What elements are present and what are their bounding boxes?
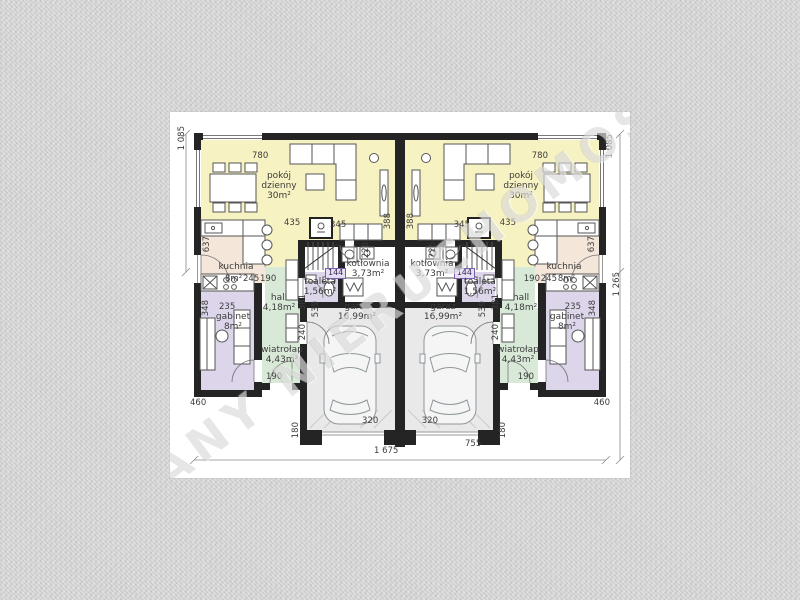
room-label-toilet: toaleta 1,56m²	[300, 278, 340, 298]
room-name: pokój dzienny	[256, 172, 302, 192]
room-area: 8m²	[212, 323, 254, 333]
room-area-kitchen: 8m²	[225, 275, 242, 284]
dim-240: 240	[492, 324, 501, 340]
room-area: 4,18m²	[262, 304, 296, 314]
dim-435: 435	[500, 219, 516, 228]
room-area: 30m²	[498, 192, 544, 202]
room-label-office: gabinet 8m²	[546, 313, 588, 333]
floor-plan: 780 pokój dzienny 30m² 435 345 388 kuchn…	[170, 112, 630, 478]
room-label-living: pokój dzienny 30m²	[498, 172, 544, 202]
room-area: 1,56m²	[460, 288, 500, 298]
room-area: 16,99m²	[414, 313, 472, 323]
dim-320: 320	[362, 417, 378, 426]
room-label-hall: hall 4,18m²	[262, 294, 296, 314]
dim-539: 539	[479, 301, 488, 317]
room-area: 4,43m²	[494, 356, 542, 366]
room-area: 30m²	[256, 192, 302, 202]
dim-345: 345	[454, 221, 470, 230]
room-label-boiler: kotłownia 3,73m²	[404, 260, 460, 280]
dim-180: 180	[292, 422, 301, 438]
dim-637: 637	[203, 236, 212, 252]
dim-235: 235	[565, 303, 581, 312]
dim-348: 348	[589, 300, 598, 316]
dim-780: 780	[252, 152, 268, 161]
dim-180: 180	[499, 422, 508, 438]
room-name: kuchnia	[216, 263, 256, 273]
unit-right: 780 pokój dzienny 30m² 435 345 388 kuchn…	[400, 112, 630, 478]
room-area: 8m²	[546, 323, 588, 333]
dim-348: 348	[202, 300, 211, 316]
dim-320: 320	[422, 417, 438, 426]
room-label-vestibule: wiatrołap 4,43m²	[258, 346, 306, 366]
dim-190-kitchen: 190	[524, 275, 540, 284]
room-area: 4,18m²	[504, 304, 538, 314]
unit-left: 780 pokój dzienny 30m² 435 345 388 kuchn…	[170, 112, 400, 478]
dim-460: 460	[190, 399, 206, 408]
dim-539: 539	[312, 301, 321, 317]
dim-190-kitchen: 190	[260, 275, 276, 284]
room-area: 3,73m²	[404, 270, 460, 280]
room-label-garage: garaż 16,99m²	[328, 303, 386, 323]
dim-460: 460	[594, 399, 610, 408]
unit-labels: 780 pokój dzienny 30m² 435 345 388 kuchn…	[170, 112, 400, 478]
dim-240: 240	[299, 324, 308, 340]
dim-245: 245	[243, 275, 259, 284]
room-area: 4,43m²	[258, 356, 306, 366]
room-label-boiler: kotłownia 3,73m²	[340, 260, 396, 280]
dim-388: 388	[407, 213, 416, 229]
dim-190-vestibule: 190	[518, 373, 534, 382]
dim-226: 226	[362, 242, 371, 258]
dim-190-vestibule: 190	[266, 373, 282, 382]
dim-235: 235	[219, 303, 235, 312]
room-label-office: gabinet 8m²	[212, 313, 254, 333]
dim-637: 637	[588, 236, 597, 252]
unit-labels: 780 pokój dzienny 30m² 435 345 388 kuchn…	[400, 112, 630, 478]
room-area: 3,73m²	[340, 270, 396, 280]
screenshot-stage: 780 pokój dzienny 30m² 435 345 388 kuchn…	[0, 0, 800, 600]
dim-780: 780	[532, 152, 548, 161]
dim-435: 435	[284, 219, 300, 228]
room-name: pokój dzienny	[498, 172, 544, 192]
room-label-vestibule: wiatrołap 4,43m²	[494, 346, 542, 366]
floor-plan-sheet: 780 pokój dzienny 30m² 435 345 388 kuchn…	[170, 112, 630, 478]
room-label-kitchen: kuchnia	[544, 263, 584, 273]
room-name: kuchnia	[544, 263, 584, 273]
dim-388: 388	[384, 213, 393, 229]
room-area: 1,56m²	[300, 288, 340, 298]
room-label-living: pokój dzienny 30m²	[256, 172, 302, 202]
room-label-toilet: toaleta 1,56m²	[460, 278, 500, 298]
room-area-kitchen: 8m²	[558, 275, 575, 284]
room-label-garage: garaż 16,99m²	[414, 303, 472, 323]
dim-226: 226	[429, 242, 438, 258]
room-label-hall: hall 4,18m²	[504, 294, 538, 314]
room-label-kitchen: kuchnia	[216, 263, 256, 273]
dim-345: 345	[330, 221, 346, 230]
dim-245: 245	[541, 275, 557, 284]
room-area: 16,99m²	[328, 313, 386, 323]
